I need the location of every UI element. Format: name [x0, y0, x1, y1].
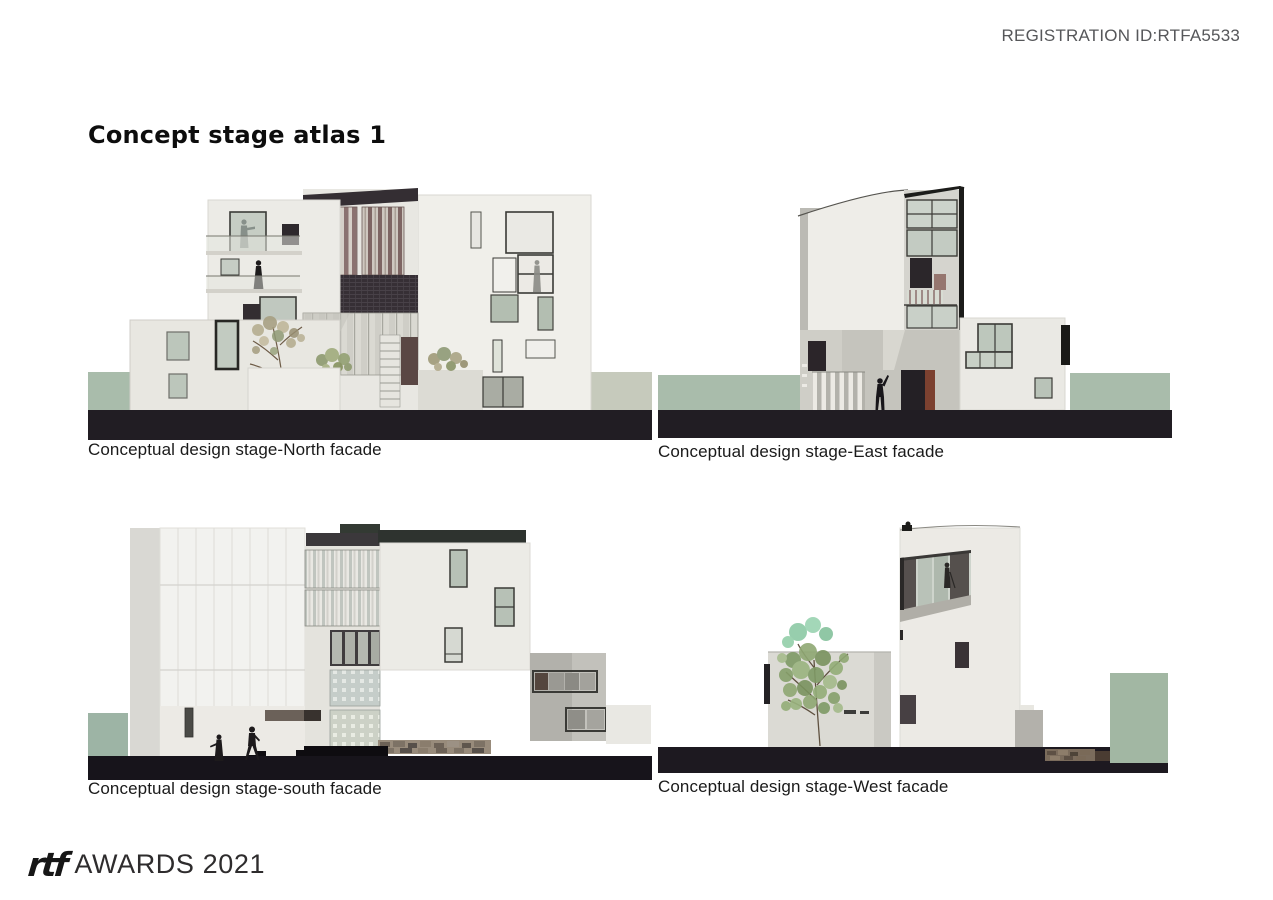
south-facade-drawing: [88, 488, 652, 780]
awards-text: AWARDS 2021: [74, 849, 265, 880]
page-title: Concept stage atlas 1: [88, 121, 386, 149]
north-facade-caption: Conceptual design stage-North facade: [88, 440, 382, 460]
west-facade-drawing: [658, 510, 1170, 775]
rtf-logo-icon: rtf: [27, 848, 67, 881]
stone-wall: [378, 740, 491, 754]
footer: rtf AWARDS 2021: [28, 848, 265, 881]
east-facade-panel: [658, 178, 1172, 440]
registration-id: REGISTRATION ID:RTFA5533: [1002, 26, 1240, 46]
south-facade-panel: [88, 488, 652, 780]
east-facade-drawing: [658, 178, 1172, 440]
east-facade-caption: Conceptual design stage-East facade: [658, 442, 944, 462]
presentation-sheet: REGISTRATION ID:RTFA5533 Concept stage a…: [0, 0, 1273, 900]
west-facade-caption: Conceptual design stage-West facade: [658, 777, 948, 797]
north-facade-panel: [88, 155, 652, 440]
south-facade-caption: Conceptual design stage-south facade: [88, 779, 382, 799]
west-facade-panel: [658, 510, 1170, 775]
north-facade-drawing: [88, 155, 652, 440]
stone-wall: [1045, 749, 1095, 761]
